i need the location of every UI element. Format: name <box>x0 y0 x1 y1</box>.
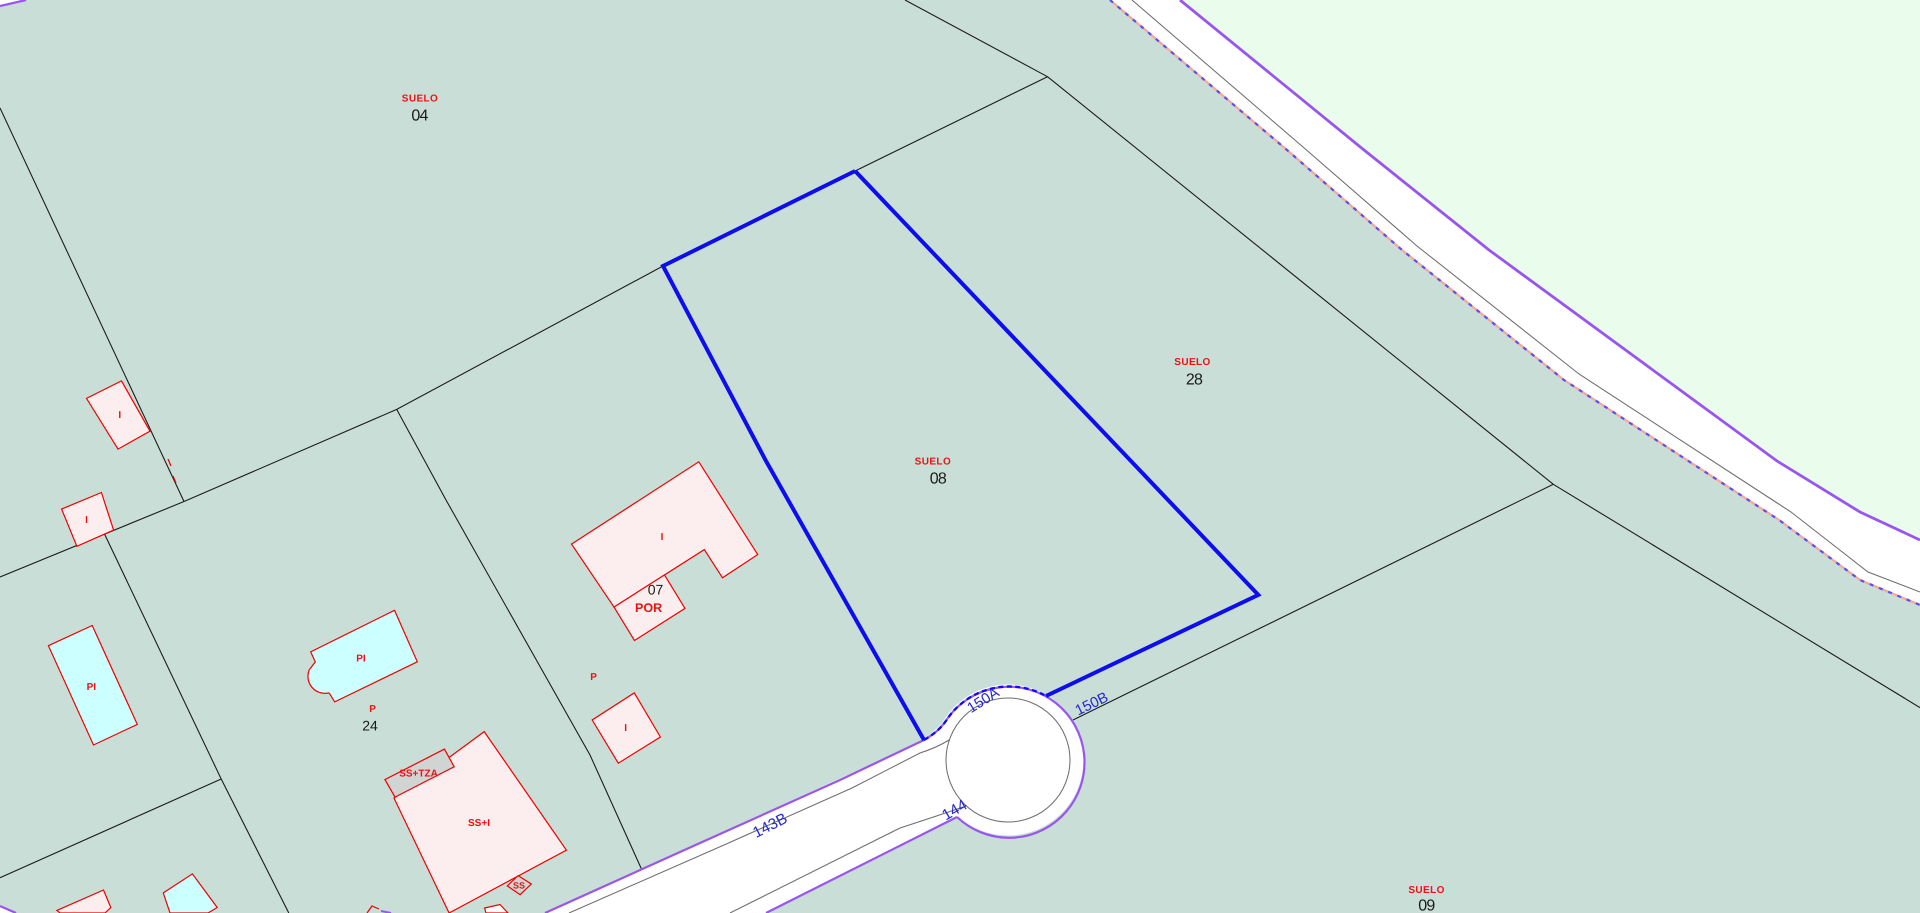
svg-text:28: 28 <box>1186 372 1203 389</box>
svg-text:SUELO: SUELO <box>402 94 438 105</box>
svg-text:08: 08 <box>930 471 947 488</box>
svg-text:PI: PI <box>87 682 97 693</box>
svg-text:P: P <box>369 704 376 715</box>
svg-text:I: I <box>118 410 121 421</box>
svg-text:SS: SS <box>513 881 525 891</box>
svg-text:SUELO: SUELO <box>1174 357 1210 368</box>
svg-text:07: 07 <box>648 582 664 598</box>
svg-text:SUELO: SUELO <box>915 457 951 468</box>
svg-text:POR: POR <box>635 601 662 615</box>
svg-text:09: 09 <box>1418 898 1435 913</box>
svg-text:SS+TZA: SS+TZA <box>399 769 438 780</box>
svg-text:24: 24 <box>362 718 378 734</box>
svg-text:PI: PI <box>356 654 366 665</box>
svg-text:SUELO: SUELO <box>1408 885 1444 896</box>
svg-text:04: 04 <box>411 108 428 125</box>
svg-text:I: I <box>85 515 88 526</box>
svg-text:I: I <box>624 723 627 734</box>
svg-text:I: I <box>661 532 664 543</box>
svg-text:SS+I: SS+I <box>468 818 490 829</box>
svg-text:P: P <box>590 672 597 683</box>
